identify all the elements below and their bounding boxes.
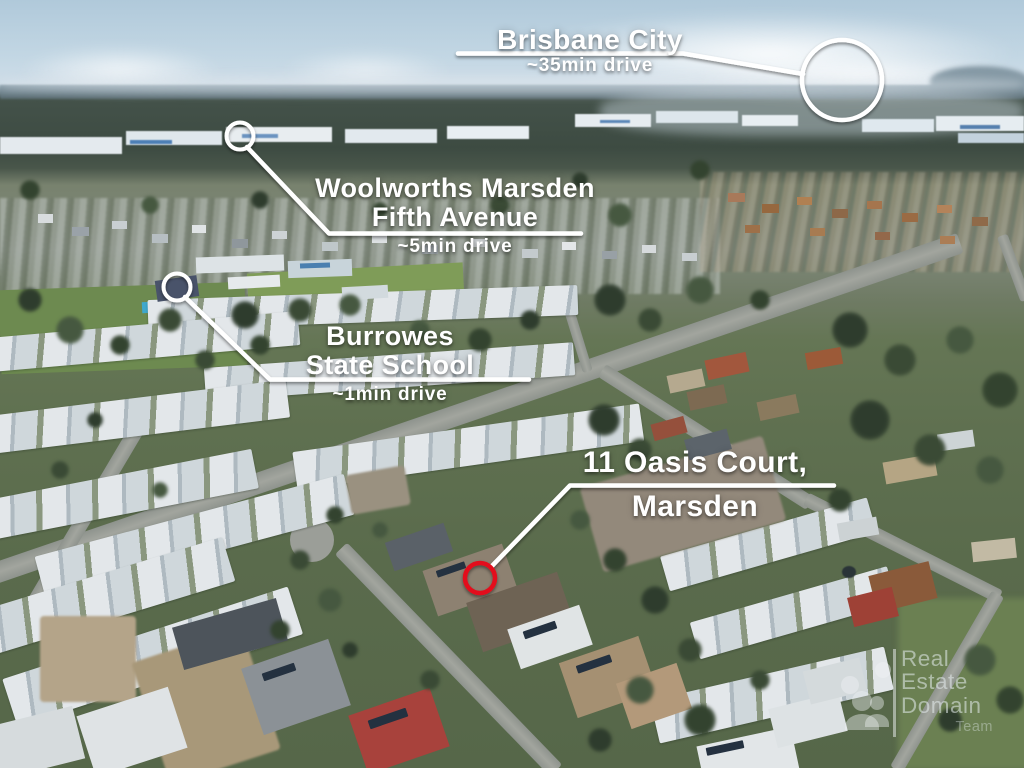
school-drive-time: ~1min drive xyxy=(235,385,545,405)
watermark-divider xyxy=(893,649,896,737)
watermark-word-estate: Estate xyxy=(901,670,1001,693)
brisbane-callout: Brisbane City ~35min drive xyxy=(430,25,750,76)
school-target-circle xyxy=(164,274,191,301)
brisbane-target-circle xyxy=(802,40,882,120)
watermark-word-domain: Domain xyxy=(901,694,1001,717)
watermark-word-real: Real xyxy=(901,647,1001,670)
brisbane-title: Brisbane City xyxy=(430,25,750,55)
woolworths-target-circle xyxy=(227,123,254,150)
woolworths-drive-time: ~5min drive xyxy=(300,237,610,257)
property-line1: 11 Oasis Court, xyxy=(540,447,850,479)
property-target-circle xyxy=(465,563,495,593)
school-callout: Burrowes State School ~1min drive xyxy=(235,322,545,405)
agency-watermark: Real Estate Domain Team xyxy=(836,645,1011,745)
property-callout: 11 Oasis Court, Marsden xyxy=(540,447,850,523)
woolworths-callout: Woolworths Marsden Fifth Avenue ~5min dr… xyxy=(300,174,610,257)
watermark-word-team: Team xyxy=(901,719,993,735)
woolworths-line1: Woolworths Marsden xyxy=(300,174,610,203)
woolworths-line2: Fifth Avenue xyxy=(300,203,610,232)
watermark-text: Real Estate Domain Team xyxy=(901,647,1001,735)
school-line1: Burrowes xyxy=(235,322,545,351)
people-group-icon xyxy=(836,645,894,741)
property-line2: Marsden xyxy=(540,491,850,523)
school-line2: State School xyxy=(235,351,545,380)
brisbane-drive-time: ~35min drive xyxy=(430,56,750,76)
aerial-photo: Brisbane City ~35min drive Woolworths Ma… xyxy=(0,0,1024,768)
